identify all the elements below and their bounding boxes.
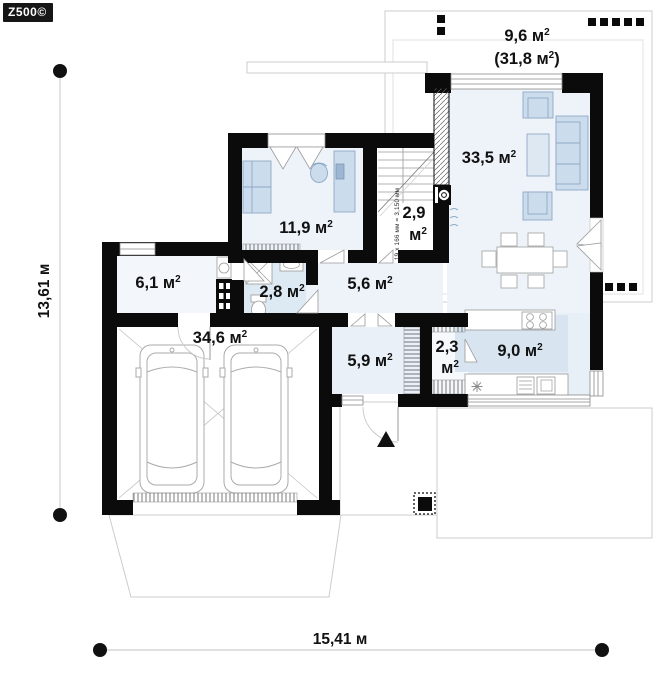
panel-cell xyxy=(219,303,224,309)
wall xyxy=(590,93,603,218)
column-marker xyxy=(624,18,632,26)
wall xyxy=(590,272,603,370)
electric-panel xyxy=(216,279,232,313)
car-mirror xyxy=(203,368,208,377)
wall xyxy=(398,394,468,407)
panel-cell xyxy=(219,293,224,299)
desk-chair xyxy=(311,164,328,183)
dining-chair xyxy=(482,251,496,267)
wall xyxy=(102,242,117,515)
living-top-window xyxy=(451,74,562,89)
column-marker xyxy=(617,283,625,291)
room-label-bathroom: 2,8 м2 xyxy=(259,283,305,301)
room-label-entry: 6,1 м2 xyxy=(135,274,181,292)
entry-window xyxy=(120,243,155,255)
fridge-symbol xyxy=(472,381,483,392)
wall xyxy=(562,73,603,93)
dish-rack xyxy=(517,377,534,394)
car-mirror xyxy=(136,368,141,377)
armchair-seat xyxy=(528,98,548,118)
column-marker xyxy=(437,15,445,23)
wall xyxy=(332,394,342,407)
panel-cell xyxy=(226,293,231,299)
chimney-hatch xyxy=(434,88,449,185)
dimension-dot xyxy=(595,643,609,657)
wall xyxy=(210,313,348,327)
coffee-table xyxy=(527,134,549,176)
mudroom-wardrobe xyxy=(404,327,420,394)
column-marker xyxy=(437,27,445,35)
garage-door xyxy=(133,493,297,502)
armchair-bottom xyxy=(523,192,552,220)
room-label-living: 33,5 м2 xyxy=(462,149,517,167)
room-label-kitchen: 9,0 м2 xyxy=(497,342,543,360)
fireplace xyxy=(433,185,451,205)
wall xyxy=(420,318,432,397)
width-dimension-label: 15,41 м xyxy=(313,631,368,648)
wall xyxy=(102,313,178,327)
column-marker xyxy=(588,18,596,26)
wall xyxy=(363,133,377,263)
desk xyxy=(334,151,355,212)
hall-mudroom-door-b xyxy=(378,314,392,326)
armchair-seat xyxy=(528,192,547,214)
wall xyxy=(325,133,434,148)
wall xyxy=(433,204,449,263)
dimension-dot xyxy=(93,643,107,657)
car-mirror xyxy=(287,368,292,377)
room-label-office: 11,9 м2 xyxy=(279,219,333,237)
roof-overhang-line xyxy=(247,62,427,73)
room-label-hall: 5,6 м2 xyxy=(347,275,393,293)
fireplace-flue xyxy=(439,190,449,200)
column-marker xyxy=(605,283,613,291)
mudroom-sidelight xyxy=(342,396,363,405)
kitchen-corner-window xyxy=(590,371,603,396)
wall xyxy=(228,133,242,263)
panel-cell xyxy=(226,283,231,289)
column-marker xyxy=(612,18,620,26)
computer-monitor xyxy=(336,164,344,179)
room-label-mudroom: 5,9 м2 xyxy=(347,352,393,370)
armchair-top xyxy=(523,92,553,118)
room-label-garage: 34,6 м2 xyxy=(193,329,248,347)
wall xyxy=(297,500,340,515)
kitchen-bottom-window xyxy=(468,395,590,406)
room-label-pantry-line1: 2,3 xyxy=(436,338,459,356)
wall xyxy=(102,500,133,515)
dining-chair xyxy=(528,233,544,246)
pantry-shelf-bottom xyxy=(432,380,465,394)
column-marker xyxy=(600,18,608,26)
entry-units xyxy=(216,257,232,313)
office-door xyxy=(320,250,344,263)
dimension-dot xyxy=(53,64,67,78)
floor-plan-drawing: 9,6 м2 (31,8 м2) 33,5 м2 11,9 м2 2,9 м2 … xyxy=(0,0,655,678)
sofa xyxy=(556,116,588,190)
car-mirror xyxy=(220,368,225,377)
dining-chair xyxy=(528,275,544,288)
stairs-note: 19 x 166 мм = 3,150 мм xyxy=(394,188,401,260)
column-marker xyxy=(636,18,644,26)
wall xyxy=(242,250,318,263)
car-left xyxy=(136,345,208,493)
dining-chair xyxy=(501,233,517,246)
dining-table xyxy=(497,247,553,273)
terrace-area-label: 9,6 м2 xyxy=(504,27,550,45)
dimension-dot xyxy=(53,508,67,522)
wall xyxy=(306,263,318,285)
wall xyxy=(319,327,332,515)
stove xyxy=(522,312,552,329)
wall xyxy=(398,250,434,263)
room-label-closet-line1: 2,9 xyxy=(403,204,426,222)
fireplace-slot xyxy=(435,187,438,203)
dining-chair xyxy=(501,275,517,288)
panel-cell xyxy=(219,283,224,289)
hall-mudroom-door-a xyxy=(351,314,365,326)
dining-chair xyxy=(553,251,567,267)
column-marker xyxy=(629,283,637,291)
driveway-outline xyxy=(109,515,341,597)
floor-plan-page: Z500© xyxy=(0,0,655,678)
panel-cell xyxy=(226,303,231,309)
side-terrace-outline xyxy=(437,408,652,538)
height-dimension-label: 13,61 м xyxy=(36,264,53,319)
wall xyxy=(348,250,363,263)
sofa-seat xyxy=(556,122,580,184)
car-right xyxy=(220,345,292,493)
wall xyxy=(230,280,244,313)
